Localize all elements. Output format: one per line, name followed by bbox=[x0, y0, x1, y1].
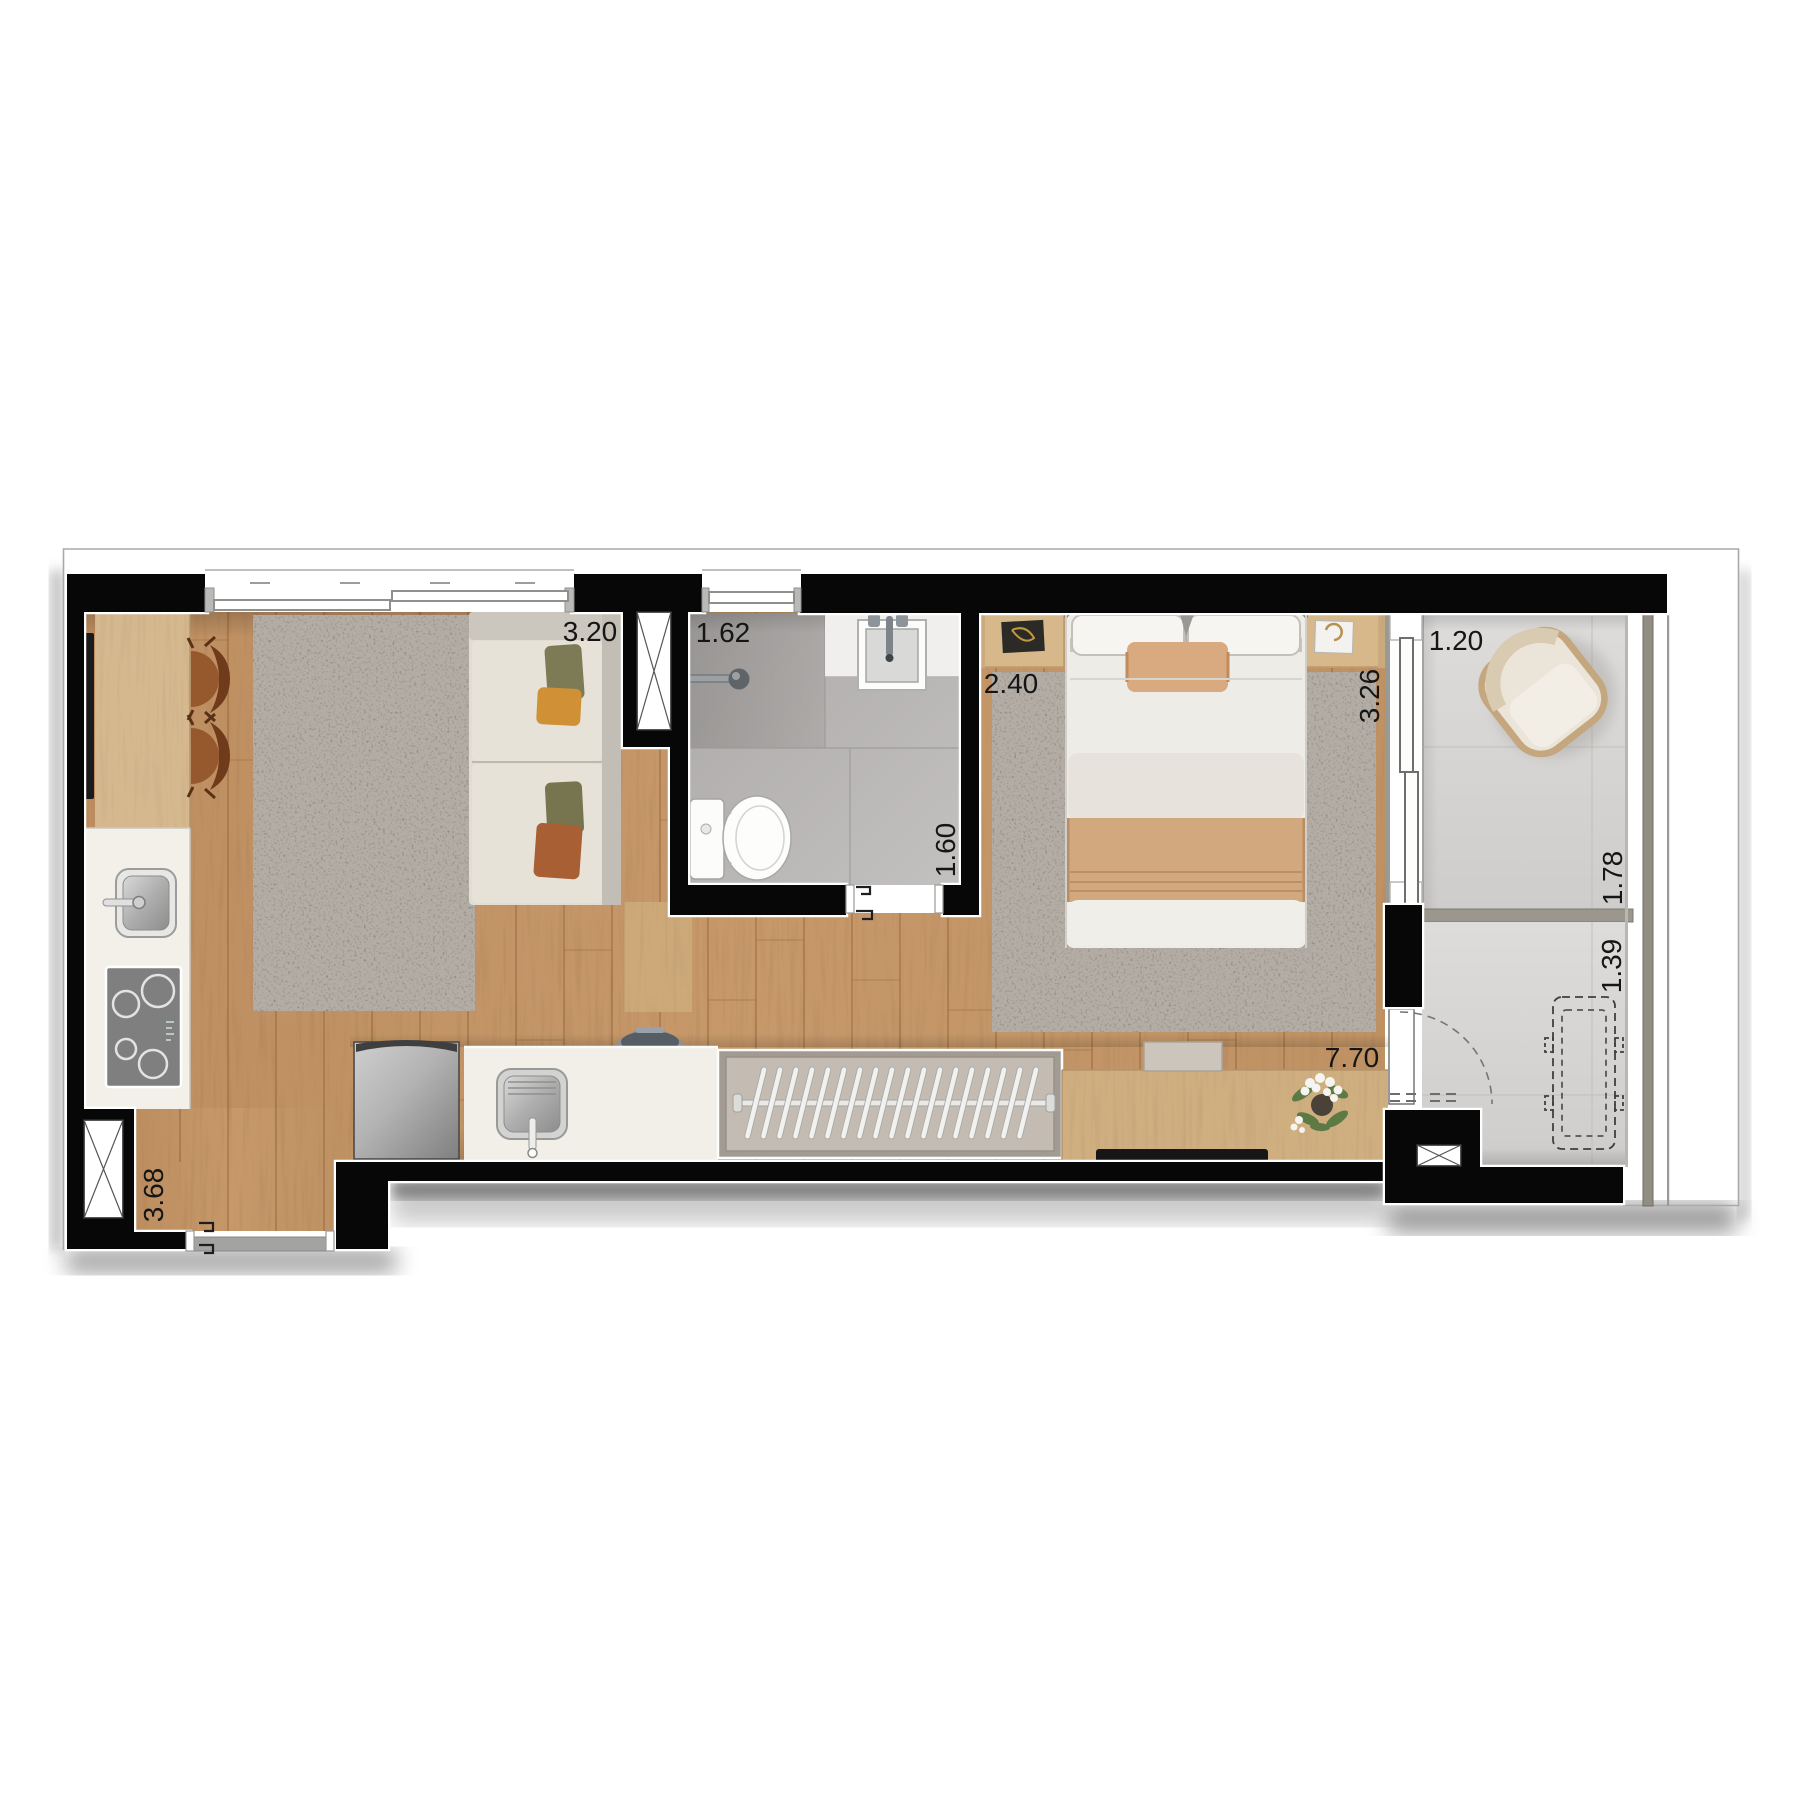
svg-text:1.78: 1.78 bbox=[1597, 851, 1628, 906]
svg-text:1.62: 1.62 bbox=[696, 617, 751, 648]
svg-text:3.20: 3.20 bbox=[563, 616, 618, 647]
svg-text:1.20: 1.20 bbox=[1429, 625, 1484, 656]
svg-text:1.39: 1.39 bbox=[1596, 939, 1627, 994]
svg-text:1.60: 1.60 bbox=[930, 823, 961, 878]
svg-text:3.26: 3.26 bbox=[1354, 669, 1385, 724]
svg-text:7.70: 7.70 bbox=[1325, 1042, 1380, 1073]
svg-text:3.68: 3.68 bbox=[138, 1168, 169, 1223]
svg-text:2.40: 2.40 bbox=[984, 668, 1039, 699]
